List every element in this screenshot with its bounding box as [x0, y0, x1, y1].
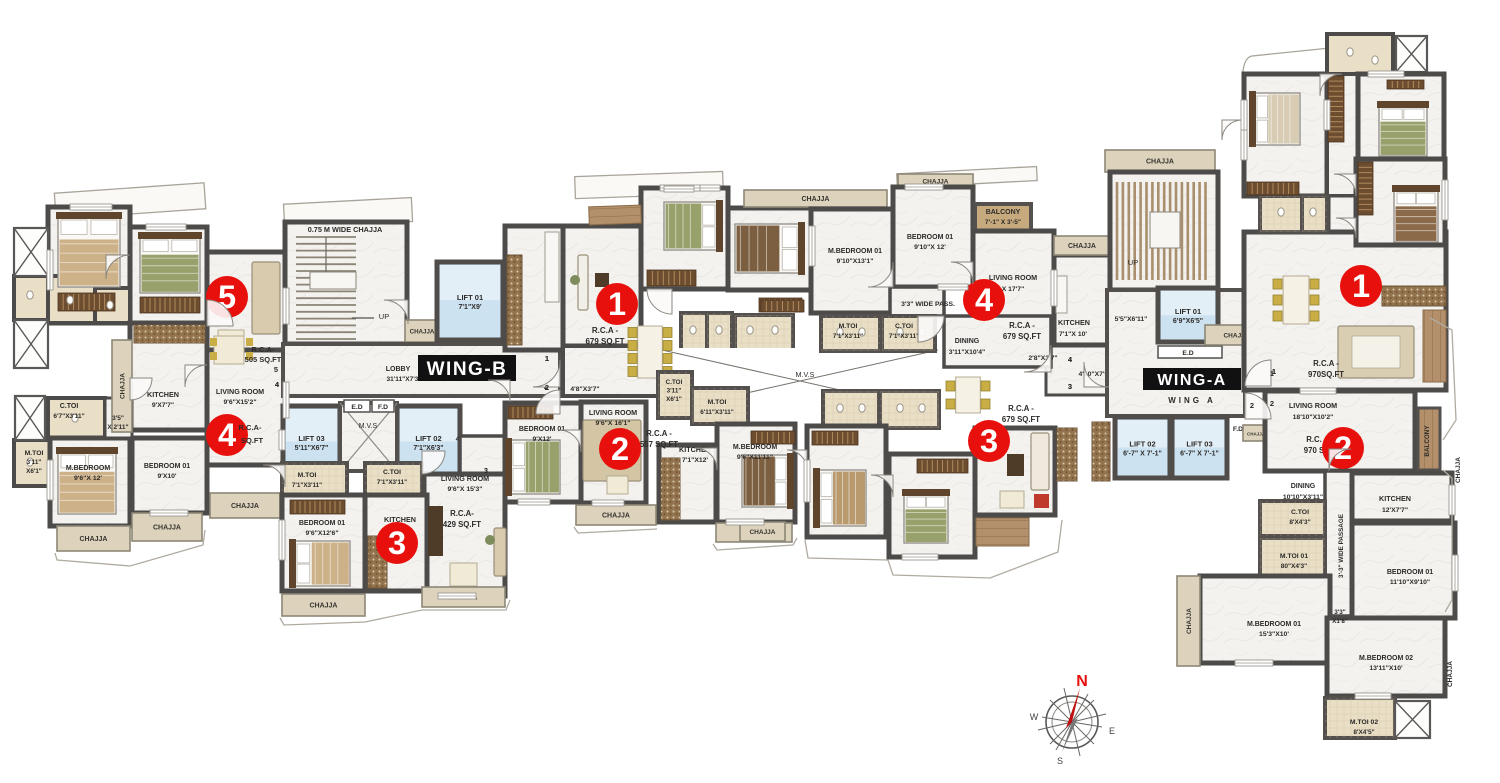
- svg-text:8'X4'3": 8'X4'3": [1289, 519, 1310, 526]
- svg-text:M.BEDROOM: M.BEDROOM: [66, 465, 111, 472]
- svg-text:505 SQ.FT: 505 SQ.FT: [245, 355, 282, 364]
- svg-text:9'X10': 9'X10': [157, 473, 176, 480]
- svg-text:970SQ.FT: 970SQ.FT: [1308, 370, 1344, 379]
- svg-text:CHAJJA: CHAJJA: [410, 328, 435, 335]
- svg-text:R.C.A-: R.C.A-: [252, 345, 275, 354]
- svg-text:M.TOI 02: M.TOI 02: [1350, 719, 1378, 726]
- svg-text:15'3"X10': 15'3"X10': [1259, 631, 1289, 638]
- svg-text:X 2'11": X 2'11": [107, 424, 128, 431]
- svg-text:CHAJJA: CHAJJA: [749, 529, 775, 536]
- svg-text:CHAJJA: CHAJJA: [801, 196, 829, 203]
- svg-text:7'-1" X 3'-5": 7'-1" X 3'-5": [985, 219, 1021, 226]
- svg-text:CHAJJA: CHAJJA: [309, 602, 337, 609]
- svg-text:3: 3: [484, 468, 488, 475]
- svg-text:SQ.FT: SQ.FT: [241, 436, 264, 445]
- svg-text:LIFT 03: LIFT 03: [1186, 440, 1212, 449]
- svg-text:KITCHEN: KITCHEN: [1379, 494, 1411, 503]
- svg-text:11'10"X9'10": 11'10"X9'10": [1390, 579, 1430, 586]
- svg-text:R.C.A-: R.C.A-: [450, 509, 474, 518]
- svg-text:F.D: F.D: [378, 404, 388, 411]
- svg-text:3: 3: [388, 525, 406, 561]
- svg-text:C.TOI: C.TOI: [383, 469, 401, 476]
- svg-text:6'11"X3'11": 6'11"X3'11": [700, 409, 733, 416]
- svg-text:2: 2: [545, 383, 549, 392]
- svg-text:12'X7'7": 12'X7'7": [1382, 507, 1408, 514]
- svg-text:M.TOI 01: M.TOI 01: [1280, 553, 1308, 560]
- svg-text:13'11"X10': 13'11"X10': [1369, 665, 1403, 672]
- svg-text:3'3" WIDE PASS.: 3'3" WIDE PASS.: [901, 301, 955, 308]
- svg-text:7'1"X9': 7'1"X9': [459, 304, 482, 311]
- svg-text:C.TOI: C.TOI: [666, 379, 683, 386]
- svg-text:3'-3" WIDE PASSAGE: 3'-3" WIDE PASSAGE: [1338, 514, 1345, 578]
- svg-text:M.TOI: M.TOI: [708, 399, 727, 406]
- svg-text:7'1"X3'11": 7'1"X3'11": [292, 482, 322, 489]
- svg-text:M.TOI: M.TOI: [25, 450, 44, 457]
- svg-text:6'-7" X 7'-1": 6'-7" X 7'-1": [1180, 451, 1219, 458]
- svg-text:BALCONY: BALCONY: [986, 209, 1021, 216]
- svg-text:LIVING ROOM: LIVING ROOM: [989, 273, 1037, 282]
- svg-text:CHAJJA: CHAJJA: [602, 512, 630, 519]
- svg-text:9'10"X 12': 9'10"X 12': [914, 244, 946, 251]
- svg-text:9'6"X12'6": 9'6"X12'6": [305, 530, 338, 537]
- svg-text:679 SQ.FT: 679 SQ.FT: [1002, 415, 1040, 424]
- svg-text:WING-B: WING-B: [427, 359, 508, 380]
- svg-text:M.BEDROOM 01: M.BEDROOM 01: [828, 248, 882, 255]
- svg-text:CHAJJA: CHAJJA: [1146, 158, 1174, 165]
- svg-text:3'11": 3'11": [667, 388, 682, 395]
- svg-text:LIFT 01: LIFT 01: [1175, 307, 1201, 316]
- svg-text:X1'8": X1'8": [1332, 618, 1348, 625]
- svg-text:E.D: E.D: [351, 404, 362, 411]
- svg-text:CHAJJA: CHAJJA: [1186, 608, 1193, 634]
- svg-text:LIFT 02: LIFT 02: [1129, 440, 1155, 449]
- svg-text:M.V.S: M.V.S: [796, 370, 815, 379]
- svg-text:N: N: [1076, 673, 1088, 690]
- svg-text:X6'1": X6'1": [26, 468, 42, 475]
- svg-text:BEDROOM 01: BEDROOM 01: [519, 426, 565, 433]
- svg-text:429 SQ.FT: 429 SQ.FT: [443, 520, 481, 529]
- svg-text:9'6"X 15'3": 9'6"X 15'3": [448, 486, 483, 493]
- svg-text:CHAJJA: CHAJJA: [119, 373, 126, 399]
- svg-text:CHAJJA: CHAJJA: [153, 524, 181, 531]
- svg-text:CHAJJA: CHAJJA: [1447, 661, 1454, 687]
- svg-text:LIVING ROOM: LIVING ROOM: [1289, 401, 1337, 410]
- svg-text:UP: UP: [379, 312, 389, 321]
- svg-text:9'6"X15'2": 9'6"X15'2": [223, 399, 256, 406]
- svg-text:M.TOI: M.TOI: [839, 323, 858, 330]
- svg-text:M.BEDROOM 02: M.BEDROOM 02: [1359, 655, 1413, 662]
- svg-text:BEDROOM 01: BEDROOM 01: [907, 234, 953, 241]
- svg-text:31'11"X7'3": 31'11"X7'3": [387, 376, 422, 383]
- svg-text:18'10"X10'2": 18'10"X10'2": [1293, 414, 1334, 421]
- svg-text:80"X4'3": 80"X4'3": [1281, 563, 1308, 570]
- svg-text:4'8"X3'7": 4'8"X3'7": [570, 386, 599, 393]
- svg-text:LIVING ROOM: LIVING ROOM: [216, 387, 264, 396]
- svg-text:5: 5: [274, 365, 278, 374]
- svg-text:5'5"X6'11": 5'5"X6'11": [1115, 316, 1148, 323]
- svg-text:WING A: WING A: [1168, 396, 1215, 405]
- svg-text:679 SQ.FT: 679 SQ.FT: [1003, 332, 1041, 341]
- svg-text:C.TOI: C.TOI: [60, 403, 79, 410]
- svg-text:3'11"X10'4": 3'11"X10'4": [949, 349, 986, 356]
- svg-text:WING-A: WING-A: [1157, 372, 1226, 389]
- svg-text:6'-7" X 7'-1": 6'-7" X 7'-1": [1123, 451, 1162, 458]
- svg-text:E: E: [1109, 726, 1115, 736]
- svg-text:LIFT 01: LIFT 01: [457, 293, 483, 302]
- svg-text:R.C.A -: R.C.A -: [1009, 321, 1035, 330]
- svg-text:7'1"X 10': 7'1"X 10': [1059, 331, 1087, 338]
- svg-text:2: 2: [1270, 399, 1274, 408]
- svg-text:3'5": 3'5": [112, 415, 124, 422]
- svg-text:2'8"X3'7": 2'8"X3'7": [1028, 355, 1057, 362]
- svg-text:M.TOI: M.TOI: [298, 472, 317, 479]
- svg-text:3'11": 3'11": [27, 459, 42, 466]
- svg-text:5'11"X6'7": 5'11"X6'7": [295, 445, 329, 452]
- svg-text:1: 1: [1352, 268, 1370, 304]
- svg-text:4: 4: [975, 282, 993, 318]
- svg-text:557 SQ.FT: 557 SQ.FT: [640, 440, 678, 449]
- svg-text:R.C.A-: R.C.A-: [239, 423, 262, 432]
- svg-text:3: 3: [1068, 382, 1072, 391]
- svg-text:W: W: [1030, 712, 1039, 722]
- svg-text:7'1"X3'11": 7'1"X3'11": [377, 479, 407, 486]
- svg-text:9'X7'7": 9'X7'7": [152, 402, 174, 409]
- svg-text:7'1"X12': 7'1"X12': [682, 457, 708, 464]
- svg-text:4: 4: [218, 417, 236, 453]
- svg-text:DINING: DINING: [1291, 483, 1316, 490]
- svg-text:0.75 M WIDE CHAJJA: 0.75 M WIDE CHAJJA: [308, 225, 383, 234]
- svg-text:2: 2: [1250, 401, 1254, 410]
- svg-text:CHAJJA: CHAJJA: [1068, 243, 1096, 250]
- svg-text:LIVING ROOM: LIVING ROOM: [441, 474, 489, 483]
- svg-text:KITCHEN: KITCHEN: [1058, 318, 1090, 327]
- svg-text:KITCHEN: KITCHEN: [147, 390, 179, 399]
- svg-text:9'X12': 9'X12': [532, 436, 551, 443]
- svg-text:2: 2: [611, 431, 629, 467]
- svg-text:2: 2: [1334, 430, 1352, 466]
- svg-text:1: 1: [608, 286, 626, 322]
- svg-text:DINING: DINING: [955, 338, 980, 345]
- svg-text:C.TOI: C.TOI: [1291, 509, 1309, 516]
- svg-text:M.BEDROOM 01: M.BEDROOM 01: [1247, 621, 1301, 628]
- svg-text:R.C.: R.C.: [1306, 435, 1322, 444]
- svg-text:LIFT 03: LIFT 03: [298, 434, 324, 443]
- svg-text:CHAJJA: CHAJJA: [231, 503, 259, 510]
- svg-text:BEDROOM 01: BEDROOM 01: [144, 463, 190, 470]
- svg-text:6'7"X3'11": 6'7"X3'11": [53, 413, 84, 420]
- svg-text:1: 1: [1272, 367, 1276, 376]
- svg-text:9'6"X11'11": 9'6"X11'11": [737, 454, 773, 461]
- svg-text:X6'1": X6'1": [666, 396, 682, 403]
- svg-text:7'1"X3'11": 7'1"X3'11": [833, 333, 863, 340]
- svg-text:9'10"X13'1": 9'10"X13'1": [837, 258, 874, 265]
- svg-text:C.TOI: C.TOI: [895, 323, 913, 330]
- svg-text:BEDROOM 01: BEDROOM 01: [1387, 569, 1433, 576]
- svg-text:R.C.A -: R.C.A -: [592, 326, 619, 335]
- svg-text:8'X4'5": 8'X4'5": [1353, 729, 1374, 736]
- svg-text:M.V.S: M.V.S: [359, 423, 378, 430]
- svg-text:3: 3: [980, 423, 998, 459]
- svg-text:E.D: E.D: [1182, 350, 1193, 357]
- svg-text:CHAJJA: CHAJJA: [1455, 457, 1462, 483]
- svg-text:LOBBY: LOBBY: [386, 366, 411, 373]
- svg-text:679 SQ.FT: 679 SQ.FT: [585, 337, 624, 346]
- svg-text:M.BEDROOM: M.BEDROOM: [733, 444, 778, 451]
- svg-text:6'9"X6'5": 6'9"X6'5": [1173, 318, 1203, 325]
- svg-text:9'6"X 16'1": 9'6"X 16'1": [596, 420, 631, 427]
- svg-text:R.C.A -: R.C.A -: [646, 429, 672, 438]
- svg-text:BALCONY: BALCONY: [1424, 425, 1431, 457]
- svg-text:R.C.A -: R.C.A -: [1313, 359, 1339, 368]
- svg-text:LIFT 02: LIFT 02: [415, 434, 441, 443]
- svg-text:X 17'7": X 17'7": [1002, 286, 1025, 293]
- svg-text:R.C.A -: R.C.A -: [1008, 404, 1034, 413]
- svg-text:UP: UP: [1128, 258, 1138, 267]
- svg-text:970 S: 970 S: [1304, 446, 1324, 455]
- svg-text:S: S: [1057, 756, 1063, 766]
- svg-text:10'10"X3'11": 10'10"X3'11": [1283, 494, 1323, 501]
- svg-text:BEDROOM 01: BEDROOM 01: [299, 520, 345, 527]
- svg-text:LIVING ROOM: LIVING ROOM: [589, 408, 637, 417]
- svg-text:9'6"X 12': 9'6"X 12': [74, 475, 102, 482]
- svg-text:7'1"X3'11": 7'1"X3'11": [889, 333, 919, 340]
- svg-text:CHAJJA: CHAJJA: [79, 536, 107, 543]
- svg-text:1: 1: [545, 354, 549, 363]
- svg-text:3'3": 3'3": [1334, 609, 1346, 616]
- svg-text:F.D: F.D: [1233, 426, 1243, 433]
